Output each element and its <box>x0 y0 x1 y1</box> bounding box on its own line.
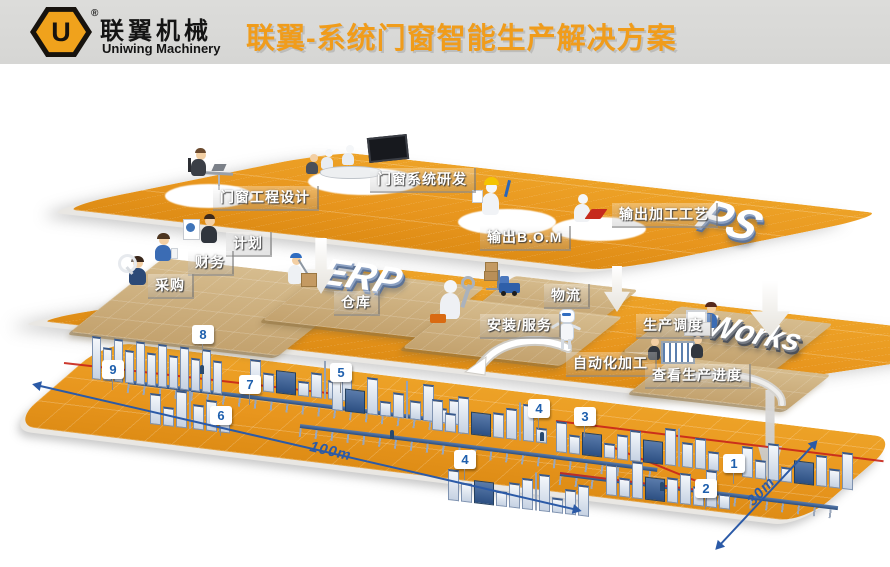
logo-hexagon-icon: U <box>36 11 86 53</box>
station-badge-6: 6 <box>210 406 232 425</box>
torso <box>306 162 318 174</box>
box-icon <box>484 271 498 281</box>
torso <box>342 153 354 165</box>
box-icon <box>301 273 317 287</box>
toolbox-icon <box>430 314 446 323</box>
hair <box>157 233 170 239</box>
presentation-screen-icon <box>367 134 409 163</box>
solution-diagram: U ® 联翼机械 Uniwing Machinery 联翼-系统门窗智能生产解决… <box>0 0 890 567</box>
torso <box>288 265 302 284</box>
label-door-window-engineering-design: 门窗工程设计 <box>213 186 319 211</box>
head <box>444 280 457 293</box>
label-logistics: 物流 <box>544 284 590 309</box>
label-output-bom: 输出B.O.M <box>480 226 571 251</box>
station-badge-1: 1 <box>723 454 745 473</box>
torso <box>155 245 171 261</box>
forklift-fork <box>486 288 498 290</box>
company-name-en: Uniwing Machinery <box>102 41 220 56</box>
head <box>310 154 318 162</box>
label-view-production-progress: 查看生产进度 <box>645 364 751 389</box>
torso <box>482 193 499 215</box>
label-automated-machining: 自动化加工 <box>566 352 657 377</box>
label-finance: 财务 <box>188 251 234 276</box>
cap-icon <box>290 253 302 258</box>
label-production-dispatch: 生产调度 <box>636 314 712 339</box>
robot-head-icon <box>559 309 575 323</box>
registered-trademark: ® <box>91 8 98 19</box>
robot-leg <box>561 339 564 349</box>
station-badge-3: 3 <box>574 407 596 426</box>
robot-visor <box>562 313 571 316</box>
worker-figure <box>390 430 394 439</box>
station-badge-9: 9 <box>102 360 124 379</box>
cup-icon <box>171 248 178 259</box>
worker-figure <box>540 432 544 441</box>
page-title: 联翼-系统门窗智能生产解决方案 <box>246 15 677 57</box>
pie-chart-icon <box>186 223 195 232</box>
worker-figure <box>660 482 664 491</box>
station-badge-4a: 4 <box>528 399 550 418</box>
laptop-icon <box>211 164 226 171</box>
hair <box>195 148 206 153</box>
station-badge-5: 5 <box>330 363 352 382</box>
wheel <box>501 291 506 296</box>
flow-arrow-curved-left-icon <box>462 336 572 380</box>
robot-leg <box>568 339 571 349</box>
head <box>325 149 333 157</box>
wheel <box>512 291 517 296</box>
uniwing-logo: U <box>30 6 92 58</box>
worker-figure <box>200 365 204 374</box>
hair <box>705 302 717 307</box>
head <box>578 194 588 204</box>
label-door-window-system-rd: 门窗系统研发 <box>370 168 476 193</box>
torso <box>691 344 703 358</box>
label-procurement: 采购 <box>148 274 194 299</box>
hard-hat-icon <box>484 177 499 185</box>
station-badge-2: 2 <box>695 479 717 498</box>
torso <box>201 226 217 243</box>
progress-board-icon <box>661 341 695 364</box>
head <box>651 338 659 346</box>
station-badge-4b: 4 <box>454 450 476 469</box>
label-install-service: 安装/服务 <box>480 314 561 339</box>
header-bar: U ® 联翼机械 Uniwing Machinery 联翼-系统门窗智能生产解决… <box>0 0 890 64</box>
label-output-process: 输出加工工艺 <box>612 203 718 228</box>
torso <box>191 159 206 176</box>
head <box>346 145 354 153</box>
label-warehouse: 仓库 <box>334 291 380 316</box>
station-badge-7: 7 <box>239 375 261 394</box>
station-badge-8: 8 <box>192 325 214 344</box>
hair <box>204 214 215 219</box>
